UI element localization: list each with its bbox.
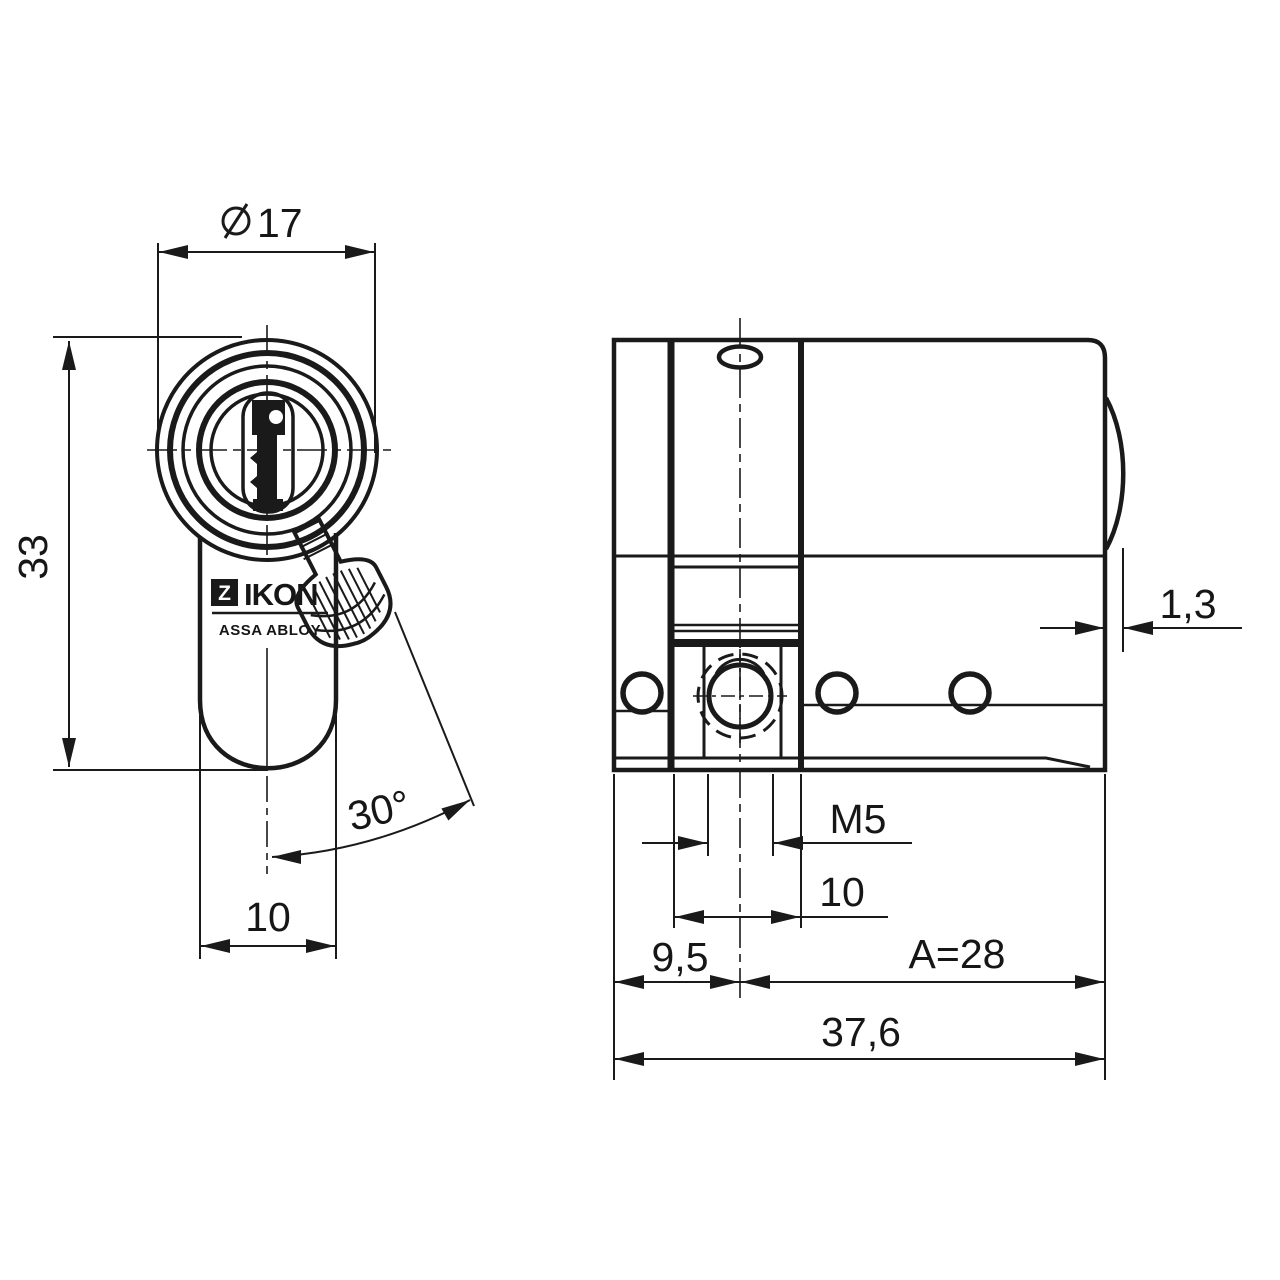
keyway [243,393,293,512]
front-view: Z IKON ASSA ABLOY [10,200,474,959]
dim-key-angle-label: 30° [343,781,414,840]
dim-total-length: 37,6 [614,1009,1105,1066]
dim-cam-clearance-label: 1,3 [1160,581,1217,627]
cam-arc [1106,398,1123,549]
side-view: 1,3 M5 10 9,5 [614,318,1242,1080]
cylinder-housing [200,533,336,768]
m5-thread-hole [693,649,787,743]
dim-height-label: 33 [10,534,56,580]
dim-key-angle: 30° [272,781,474,864]
bottom-edge-blade [614,758,1090,767]
dim-body-width-label: 10 [245,894,291,940]
dim-body-width: 10 [200,704,336,959]
key-angle-extension-line [395,612,474,806]
cylinder-lock-drawing: Z IKON ASSA ABLOY [0,0,1280,1280]
dim-cam-clearance: 1,3 [1040,548,1242,652]
dim-total-length-label: 37,6 [821,1009,901,1055]
technical-drawing-page: Z IKON ASSA ABLOY [0,0,1280,1280]
dim-thread-label: M5 [830,796,887,842]
mounting-holes [623,674,989,712]
dim-offset-label: 9,5 [652,934,709,980]
dim-thread: M5 [642,796,912,850]
ikon-logo-mark-letter: Z [218,582,231,605]
dim-slot-width: 10 [674,869,888,924]
dim-diameter-label: 17 [257,200,303,246]
dim-offset-and-a: 9,5 A=28 [614,931,1105,989]
dim-slot-width-label: 10 [819,869,865,915]
dim-length-a-label: A=28 [909,931,1006,977]
